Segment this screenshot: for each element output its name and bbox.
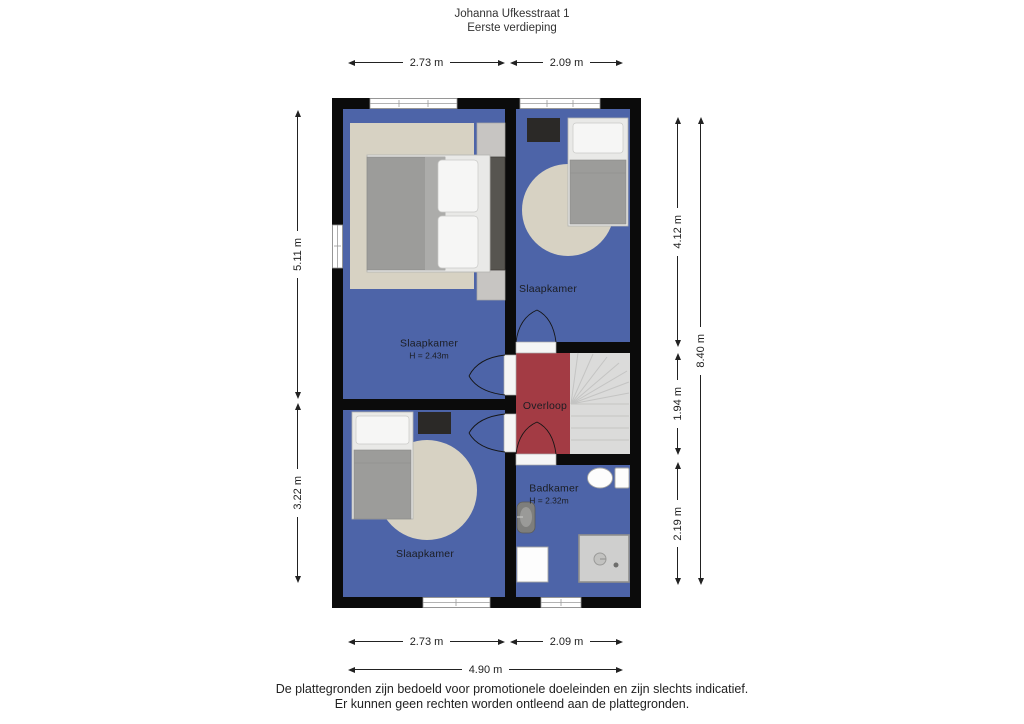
double-bed: [367, 155, 490, 272]
room-name: Slaapkamer: [400, 338, 458, 350]
washbasin: [517, 502, 535, 533]
arrow-left-icon: [348, 667, 355, 673]
arrow-left-icon: [348, 639, 355, 645]
page-subtitle: Eerste verdieping: [0, 22, 1024, 36]
arrow-right-icon: [498, 60, 505, 66]
label-bedroom-top-left: Slaapkamer H = 2.43m: [400, 338, 458, 361]
dim-left-lower-height: 3.22 m: [291, 403, 304, 583]
label-bathroom: Badkamer H = 2.32m: [529, 483, 578, 506]
dim-label: 2.09 m: [543, 636, 591, 648]
dim-label: 2.09 m: [543, 57, 591, 69]
arrow-up-icon: [295, 110, 301, 117]
dim-right-top-height: 4.12 m: [671, 117, 684, 347]
arrow-down-icon: [698, 578, 704, 585]
dim-bottom-right-width: 2.09 m: [510, 635, 623, 648]
arrow-left-icon: [510, 60, 517, 66]
dim-right-bottom-height: 2.19 m: [671, 462, 684, 585]
window-top-right: [520, 99, 600, 109]
dim-top-right-width: 2.09 m: [510, 56, 623, 69]
dim-bottom-total-width: 4.90 m: [348, 663, 623, 676]
disclaimer-line1: De plattegronden zijn bedoeld voor promo…: [0, 682, 1024, 697]
room-ceiling-height: H = 2.32m: [529, 496, 578, 506]
label-landing: Overloop: [523, 400, 567, 412]
shower-drain: [614, 563, 619, 568]
floorplan: Slaapkamer H = 2.43m Slaapkamer Slaapkam…: [332, 98, 641, 608]
window-bottom-left: [423, 598, 490, 608]
dim-label: 3.22 m: [292, 469, 304, 517]
arrow-up-icon: [295, 403, 301, 410]
dim-bottom-left-width: 2.73 m: [348, 635, 505, 648]
arrow-right-icon: [616, 60, 623, 66]
disclaimer-line2: Er kunnen geen rechten worden ontleend a…: [0, 697, 1024, 712]
label-bedroom-top-right: Slaapkamer: [519, 283, 577, 295]
dim-right-middle-height: 1.94 m: [671, 353, 684, 455]
room-name: Slaapkamer: [396, 548, 454, 560]
room-name: Slaapkamer: [519, 283, 577, 295]
floorplan-drawing: [332, 98, 641, 608]
sink: [615, 468, 629, 488]
single-bed: [568, 118, 628, 226]
label-bedroom-bottom-left: Slaapkamer: [396, 548, 454, 560]
floorplan-page: Johanna Ufkesstraat 1 Eerste verdieping …: [0, 0, 1024, 724]
cabinet: [477, 270, 505, 300]
dim-label: 2.73 m: [403, 636, 451, 648]
arrow-right-icon: [616, 667, 623, 673]
arrow-left-icon: [348, 60, 355, 66]
room-name: Badkamer: [529, 483, 578, 495]
shower: [579, 535, 629, 582]
dim-right-total-height: 8.40 m: [694, 117, 707, 585]
staircase: [570, 353, 630, 454]
arrow-down-icon: [295, 576, 301, 583]
arrow-down-icon: [675, 578, 681, 585]
dim-label: 8.40 m: [695, 327, 707, 375]
arrow-up-icon: [698, 117, 704, 124]
dim-left-upper-height: 5.11 m: [291, 110, 304, 399]
toilet: [588, 468, 613, 488]
bedroom-top-left-furniture: [350, 123, 505, 300]
single-bed: [352, 412, 413, 519]
dim-label: 1.94 m: [672, 380, 684, 428]
dresser: [527, 118, 560, 142]
arrow-up-icon: [675, 462, 681, 469]
arrow-left-icon: [510, 639, 517, 645]
arrow-up-icon: [675, 117, 681, 124]
room-name: Overloop: [523, 400, 567, 412]
disclaimer: De plattegronden zijn bedoeld voor promo…: [0, 682, 1024, 712]
dim-top-left-width: 2.73 m: [348, 56, 505, 69]
arrow-down-icon: [295, 392, 301, 399]
page-title: Johanna Ufkesstraat 1: [0, 8, 1024, 22]
window-bathroom: [541, 598, 581, 608]
nightstand: [418, 412, 451, 434]
cabinet: [477, 123, 505, 157]
window-top-left: [370, 99, 457, 109]
dim-label: 4.12 m: [672, 208, 684, 256]
room-ceiling-height: H = 2.43m: [400, 351, 458, 361]
dim-label: 2.73 m: [403, 57, 451, 69]
window-left: [333, 225, 343, 268]
arrow-down-icon: [675, 448, 681, 455]
dim-label: 5.11 m: [292, 231, 304, 278]
dim-label: 4.90 m: [462, 664, 510, 676]
arrow-right-icon: [498, 639, 505, 645]
dim-label: 2.19 m: [672, 500, 684, 548]
arrow-down-icon: [675, 340, 681, 347]
washing-machine: [517, 547, 548, 582]
arrow-right-icon: [616, 639, 623, 645]
arrow-up-icon: [675, 353, 681, 360]
title-block: Johanna Ufkesstraat 1 Eerste verdieping: [0, 8, 1024, 35]
